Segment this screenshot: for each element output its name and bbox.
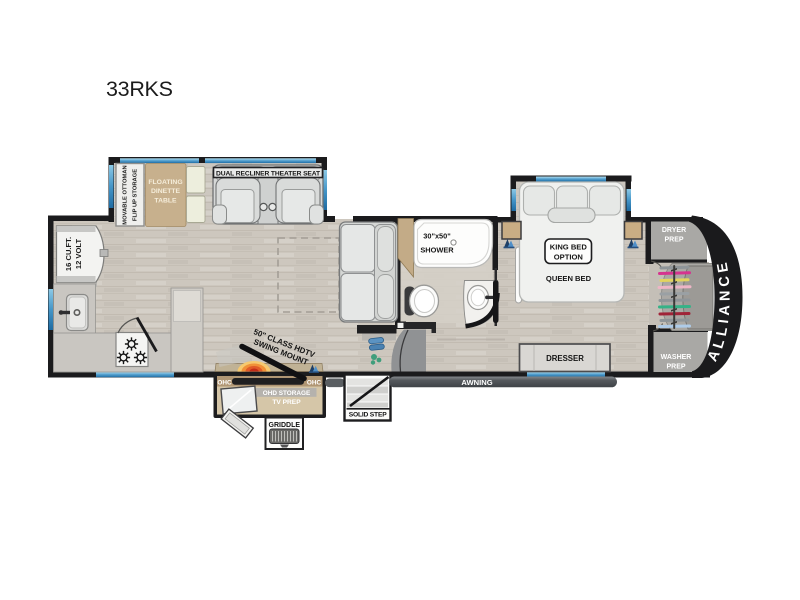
svg-text:OHC: OHC <box>217 379 232 386</box>
svg-text:12 VOLT: 12 VOLT <box>74 239 83 270</box>
svg-text:PREP: PREP <box>664 237 683 244</box>
svg-text:SHOWER: SHOWER <box>420 246 454 255</box>
svg-text:OPTION: OPTION <box>554 253 583 262</box>
svg-text:DRYER: DRYER <box>662 227 686 234</box>
svg-text:DRESSER: DRESSER <box>546 354 584 363</box>
svg-text:GRIDDLE: GRIDDLE <box>269 422 301 429</box>
svg-text:OHC: OHC <box>307 379 322 386</box>
svg-text:30"x50": 30"x50" <box>423 232 451 241</box>
svg-text:16 CU.FT.: 16 CU.FT. <box>64 237 73 271</box>
svg-text:QUEEN BED: QUEEN BED <box>546 274 592 283</box>
svg-text:FLIP UP STORAGE: FLIP UP STORAGE <box>133 169 139 221</box>
svg-text:DUAL RECLINER THEATER SEAT: DUAL RECLINER THEATER SEAT <box>216 171 321 178</box>
svg-text:WASHER: WASHER <box>661 354 692 361</box>
svg-text:AWNING: AWNING <box>461 378 492 387</box>
svg-text:PREP: PREP <box>666 364 685 371</box>
svg-text:KING BED: KING BED <box>550 243 588 252</box>
svg-text:TV PREP: TV PREP <box>272 399 301 406</box>
svg-text:TABLE: TABLE <box>154 198 177 205</box>
svg-text:DINETTE: DINETTE <box>151 188 181 195</box>
svg-text:33RKS: 33RKS <box>106 77 173 101</box>
svg-text:FLOATING: FLOATING <box>148 179 182 186</box>
svg-text:OHD STORAGE: OHD STORAGE <box>263 390 311 397</box>
svg-text:MOVABLE OTTOMAN: MOVABLE OTTOMAN <box>123 165 129 224</box>
svg-text:SOLID STEP: SOLID STEP <box>349 412 387 419</box>
